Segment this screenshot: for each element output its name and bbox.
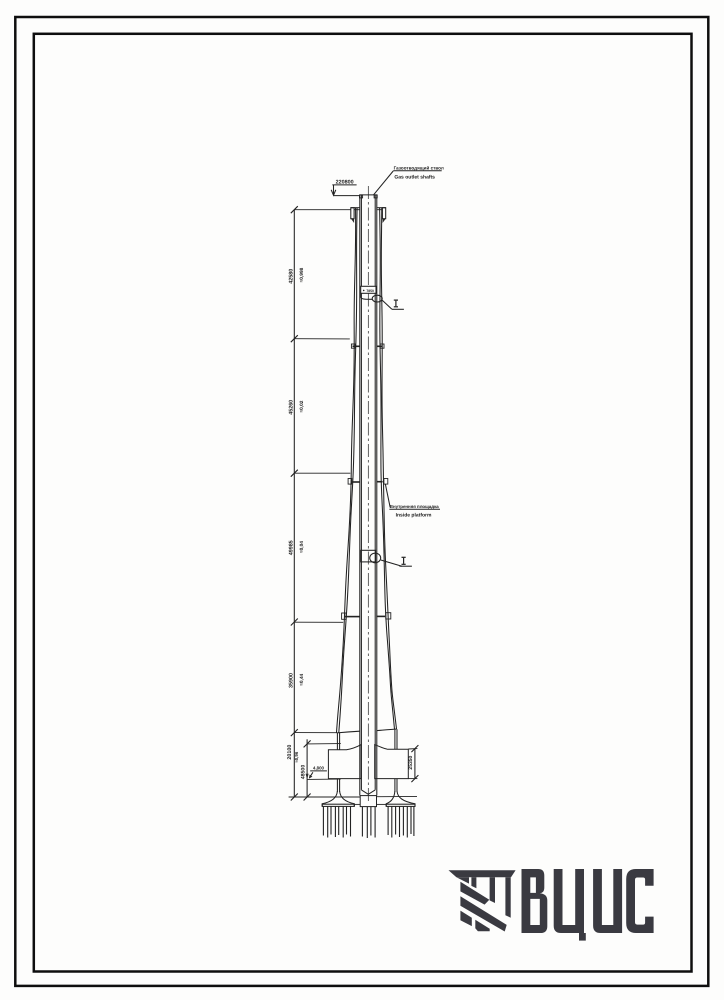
svg-text:20100: 20100 bbox=[287, 745, 293, 760]
svg-text:48500: 48500 bbox=[300, 765, 306, 780]
svg-text:Inside platform: Inside platform bbox=[396, 512, 432, 518]
svg-text:49985: 49985 bbox=[289, 540, 295, 555]
svg-text:Внутренняя площадка: Внутренняя площадка bbox=[390, 504, 439, 509]
svg-text:≈0,04: ≈0,04 bbox=[299, 541, 305, 553]
svg-text:≈0,02: ≈0,02 bbox=[299, 400, 305, 412]
svg-text:25350: 25350 bbox=[408, 755, 414, 769]
svg-text:≈0,44: ≈0,44 bbox=[299, 673, 305, 685]
svg-text:7850: 7850 bbox=[366, 289, 374, 293]
svg-text:Gas outlet shafts: Gas outlet shafts bbox=[394, 174, 435, 180]
svg-text:35900: 35900 bbox=[289, 673, 295, 688]
svg-text:Газоотводящий ствол: Газоотводящий ствол bbox=[394, 166, 444, 171]
svg-text:≈0,96: ≈0,96 bbox=[294, 751, 299, 763]
svg-text:45260: 45260 bbox=[289, 400, 295, 415]
svg-text:4,800: 4,800 bbox=[313, 765, 325, 770]
svg-text:≈0,998: ≈0,998 bbox=[299, 267, 305, 282]
svg-text:42580: 42580 bbox=[289, 269, 295, 284]
